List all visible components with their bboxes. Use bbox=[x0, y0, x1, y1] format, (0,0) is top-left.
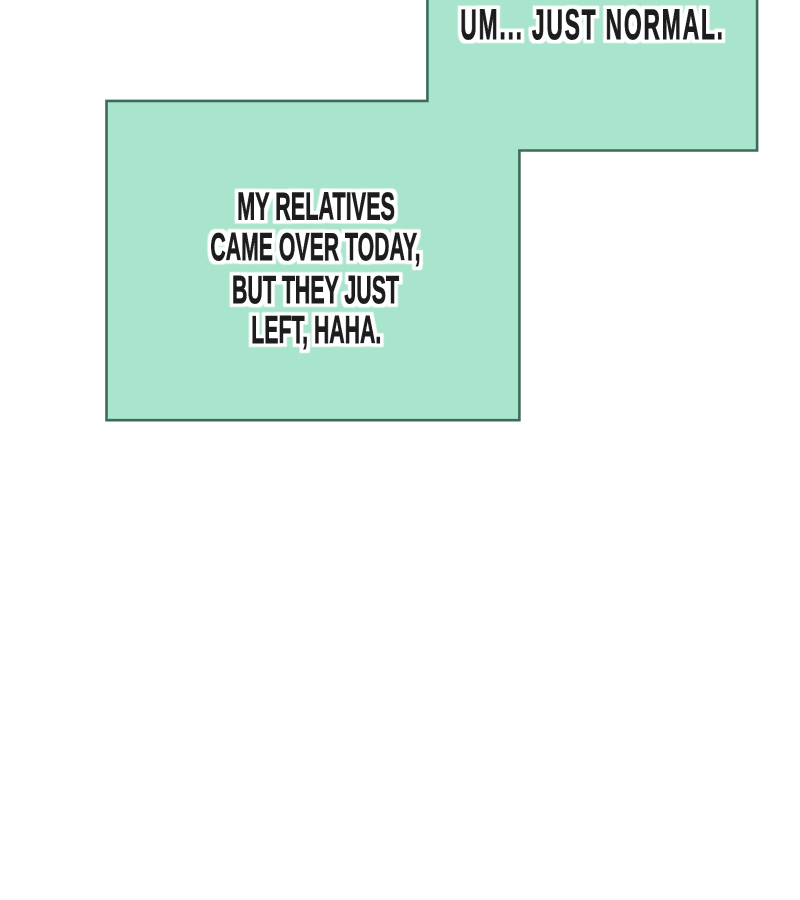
svg-text:LEFT, HAHA.: LEFT, HAHA. bbox=[251, 308, 381, 351]
svg-text:CAME OVER TODAY,: CAME OVER TODAY, bbox=[210, 225, 420, 268]
svg-text:MY RELATIVES: MY RELATIVES bbox=[237, 184, 395, 229]
svg-text:UM... JUST NORMAL.: UM... JUST NORMAL. bbox=[460, 2, 725, 49]
svg-text:BUT THEY JUST: BUT THEY JUST bbox=[232, 268, 399, 311]
